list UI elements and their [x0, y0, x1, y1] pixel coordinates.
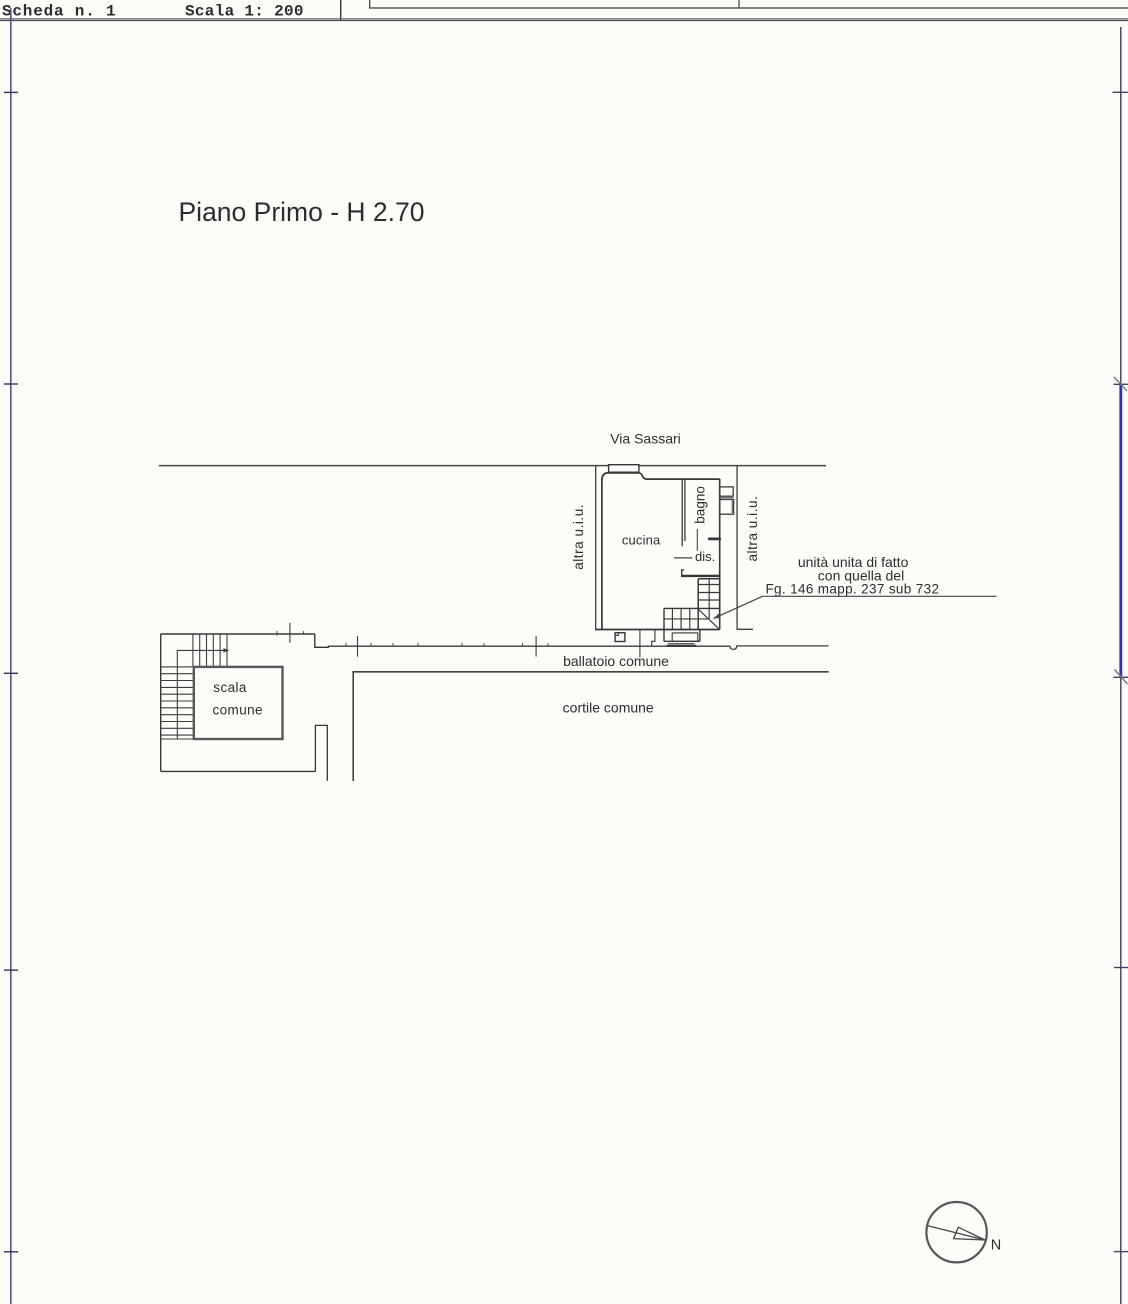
svg-text:cucina: cucina [622, 533, 661, 548]
svg-text:altra u.i.u.: altra u.i.u. [745, 496, 760, 562]
svg-text:N: N [991, 1237, 1001, 1253]
svg-text:altra u.i.u.: altra u.i.u. [571, 504, 586, 570]
svg-text:bagno: bagno [693, 486, 708, 524]
svg-text:Piano Primo - H 2.70: Piano Primo - H 2.70 [179, 197, 425, 227]
svg-text:dis.: dis. [695, 549, 715, 564]
svg-text:Scheda n. 1: Scheda n. 1 [2, 3, 116, 21]
svg-text:Scala 1: 200: Scala 1: 200 [185, 3, 304, 21]
svg-text:scala: scala [213, 680, 247, 695]
svg-text:comune: comune [213, 703, 263, 718]
svg-text:Fg. 146 mapp. 237 sub 732: Fg. 146 mapp. 237 sub 732 [765, 582, 939, 597]
svg-text:cortile comune: cortile comune [563, 700, 654, 716]
svg-text:ballatoio comune: ballatoio comune [563, 653, 669, 669]
svg-text:Via Sassari: Via Sassari [610, 431, 681, 447]
